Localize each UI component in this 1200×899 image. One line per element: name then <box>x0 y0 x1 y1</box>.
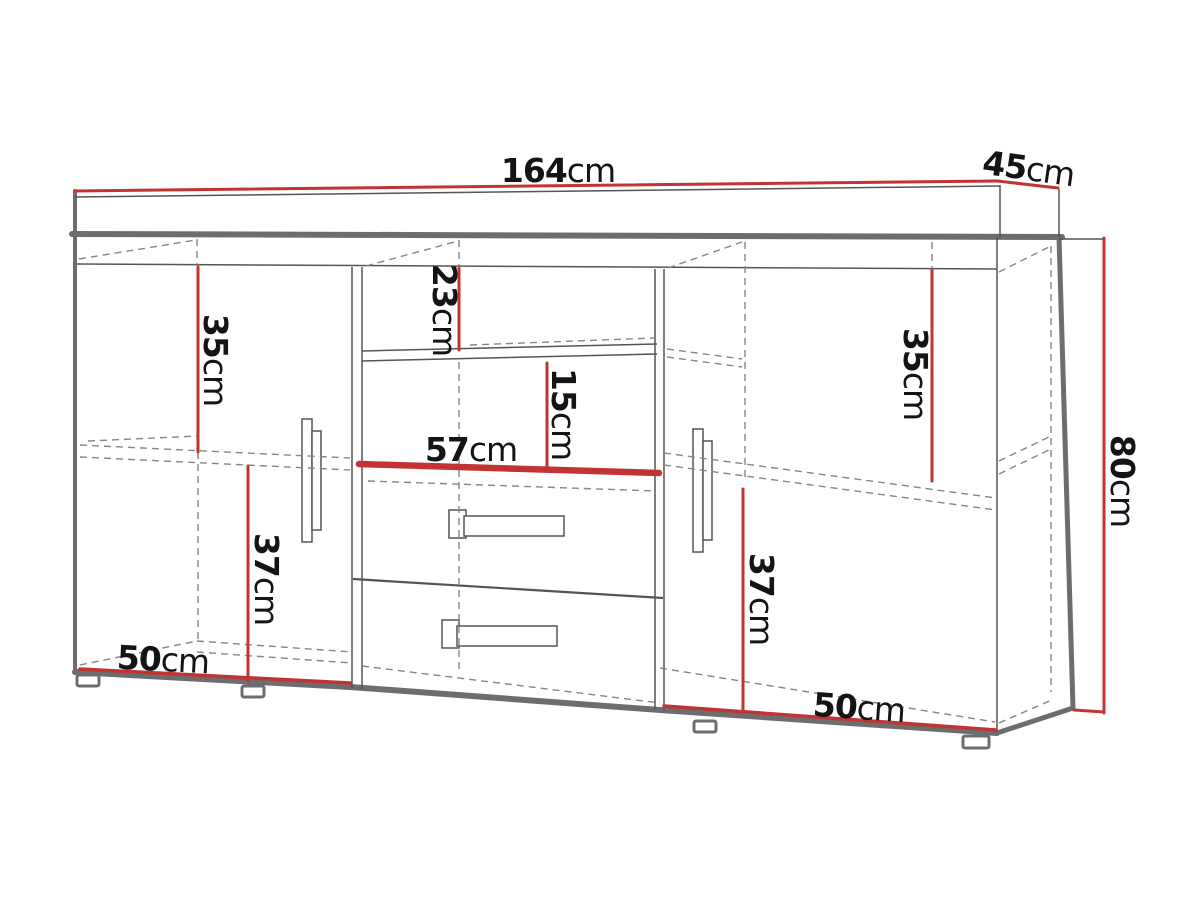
carcass-top-edge <box>72 234 1062 237</box>
dim-label-left-width-50: 50cm <box>116 638 210 682</box>
side-panel-right-edge <box>1059 237 1073 708</box>
dim-label-left-bottom-37: 37cm <box>247 533 286 625</box>
handle-bar <box>703 441 712 540</box>
upper-drawer-handle <box>449 510 564 538</box>
dimension-lines <box>75 181 1104 730</box>
middle-rear-top-diagonal <box>366 241 458 266</box>
handle-plate <box>693 429 703 552</box>
middle-shelf-rear-dashed <box>470 338 654 345</box>
side-panel-bottom-edge <box>997 708 1073 733</box>
side-shelf-diagonals <box>999 436 1051 474</box>
left-rear-top-diagonal <box>79 240 196 259</box>
middle-shelf-bottom-edge <box>362 354 657 361</box>
right-shelf-hidden-top <box>664 453 996 498</box>
middle-shelf-top-edge <box>362 344 657 351</box>
dim-label-right-top-35: 35cm <box>896 328 935 420</box>
handle-bar <box>457 626 557 646</box>
right-shelf-rear-diagonals <box>667 349 742 367</box>
dim-label-right-bottom-37: 37cm <box>742 553 781 645</box>
left-shelf-hidden-rear <box>88 436 198 441</box>
right-shelf-hidden-bottom <box>664 465 996 510</box>
handle-plate <box>302 419 312 542</box>
right-door-handle <box>693 429 712 552</box>
dim-label-middle-15: 15cm <box>544 368 583 460</box>
foot <box>963 736 989 748</box>
dim-label-right-width-50: 50cm <box>812 685 907 730</box>
left-door-handle <box>302 419 321 542</box>
left-floor-rear <box>197 641 352 663</box>
interior-ceiling-line <box>77 264 996 269</box>
diagram-canvas: 164cm 45cm 80cm 35cm 37cm 50cm 23cm 15cm… <box>0 0 1200 899</box>
drawer-divider-line <box>353 579 663 598</box>
dim-label-middle-width-57: 57cm <box>425 430 517 469</box>
dim-label-middle-top-23: 23cm <box>425 264 464 356</box>
foot <box>694 721 716 732</box>
handle-bar <box>312 431 321 530</box>
dim-line-height-80-tick <box>1074 710 1104 712</box>
middle-bottom-rear-dashed <box>368 481 656 491</box>
foot <box>77 675 99 686</box>
foot <box>242 686 264 697</box>
hidden-edges-dashed <box>79 239 1054 723</box>
right-rear-top-diagonal <box>668 242 742 268</box>
side-rear-top-diagonal <box>999 246 1051 272</box>
dim-label-height-80: 80cm <box>1103 435 1142 527</box>
handle-bar <box>464 516 564 536</box>
furniture-dimension-diagram: 164cm 45cm 80cm 35cm 37cm 50cm 23cm 15cm… <box>0 0 1200 899</box>
dim-label-width-164: 164cm <box>501 151 615 190</box>
dimension-labels: 164cm 45cm 80cm 35cm 37cm 50cm 23cm 15cm… <box>116 143 1142 730</box>
dim-label-left-top-35: 35cm <box>196 314 235 406</box>
structure-thin-lines <box>75 185 1104 732</box>
